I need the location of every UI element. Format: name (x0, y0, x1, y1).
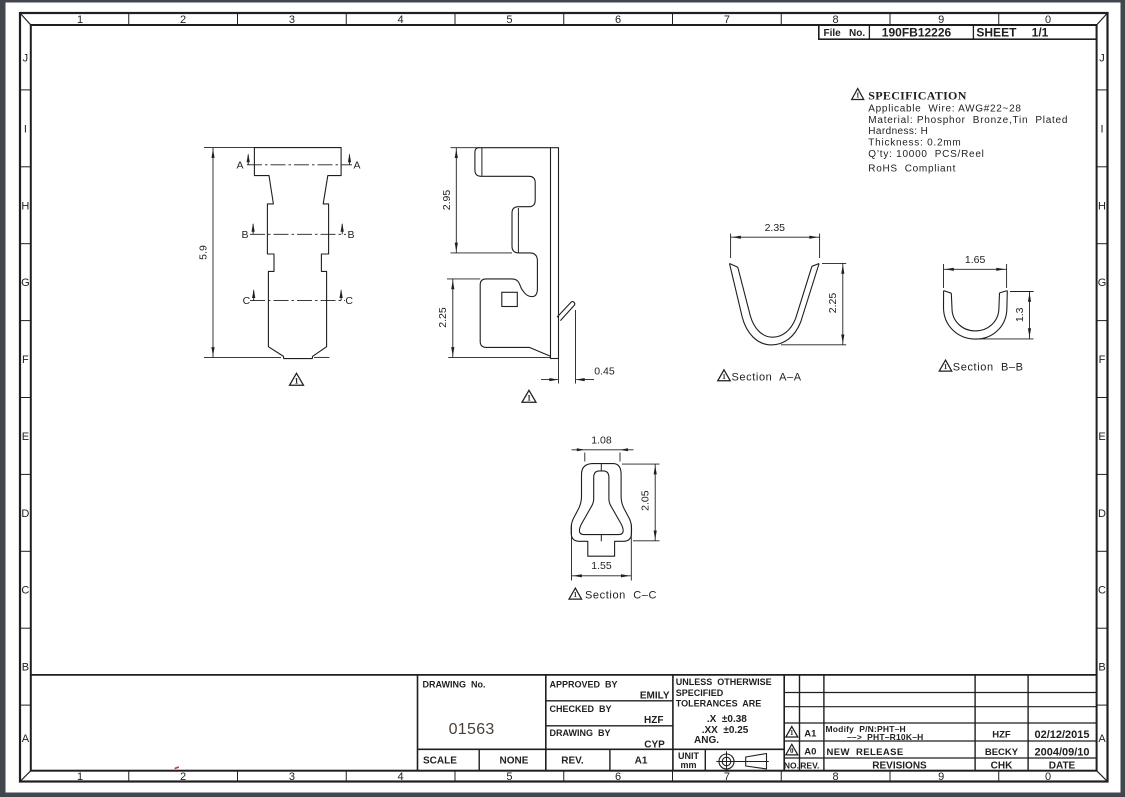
svg-text:7: 7 (724, 14, 730, 26)
svg-text:REV.: REV. (800, 760, 819, 770)
svg-text:G: G (1098, 277, 1107, 289)
svg-text:I: I (1100, 123, 1103, 135)
svg-text:G: G (21, 277, 30, 289)
svg-text:F: F (1099, 354, 1106, 366)
svg-text:CHECKED BY: CHECKED BY (550, 704, 612, 714)
svg-text:Material: Phosphor Bronze,Tin: Material: Phosphor Bronze,Tin Plated (868, 115, 1068, 126)
svg-text:H: H (1098, 200, 1106, 212)
svg-text:.X ±0.38: .X ±0.38 (707, 714, 747, 725)
svg-text:Hardness: H: Hardness: H (868, 126, 928, 137)
svg-text:DRAWING No.: DRAWING No. (423, 679, 486, 689)
svg-text:2.05: 2.05 (639, 490, 651, 511)
svg-text:A: A (22, 733, 30, 745)
svg-text:HZF: HZF (992, 729, 1011, 740)
svg-text:F: F (22, 354, 29, 366)
svg-text:2: 2 (180, 771, 186, 783)
svg-text:ANG.: ANG. (694, 735, 719, 746)
svg-text:NEW RELEASE: NEW RELEASE (827, 747, 904, 758)
svg-text:TOLERANCES ARE: TOLERANCES ARE (676, 699, 762, 709)
svg-text:6: 6 (615, 771, 621, 783)
svg-text:1: 1 (295, 376, 299, 385)
svg-text:CYP: CYP (644, 739, 665, 750)
svg-text:5.9: 5.9 (198, 245, 210, 260)
svg-text:3: 3 (289, 14, 295, 26)
svg-text:1: 1 (527, 393, 531, 402)
svg-text:File No.: File No. (824, 28, 866, 39)
svg-text:02/12/2015: 02/12/2015 (1034, 729, 1089, 741)
svg-text:E: E (1098, 431, 1105, 443)
svg-text:mm: mm (680, 760, 696, 770)
svg-text:8: 8 (833, 771, 839, 783)
svg-text:5: 5 (506, 771, 512, 783)
svg-text:9: 9 (938, 771, 944, 783)
svg-text:1.3: 1.3 (1014, 307, 1026, 322)
svg-text:C: C (1098, 585, 1106, 597)
svg-text:C: C (21, 585, 29, 597)
svg-text:5: 5 (506, 14, 512, 26)
svg-text:C: C (345, 295, 353, 307)
svg-text:SHEET: SHEET (976, 26, 1017, 40)
svg-text:1: 1 (77, 771, 83, 783)
svg-text:REV.: REV. (561, 756, 584, 767)
svg-text:1.55: 1.55 (591, 560, 612, 572)
svg-text:––> PHT–R10K–H: ––> PHT–R10K–H (847, 732, 923, 742)
svg-text:CHK: CHK (991, 760, 1013, 771)
svg-text:01563: 01563 (449, 721, 495, 738)
svg-text:0.45: 0.45 (594, 365, 615, 377)
svg-text:EMILY: EMILY (640, 691, 670, 702)
svg-text:B: B (347, 229, 354, 241)
svg-text:H: H (21, 200, 29, 212)
svg-text:HZF: HZF (644, 715, 663, 726)
svg-text:A: A (236, 159, 243, 171)
svg-text:B: B (241, 229, 248, 241)
svg-text:Section C–C: Section C–C (585, 590, 657, 602)
svg-text:DRAWING BY: DRAWING BY (550, 728, 611, 738)
svg-text:1: 1 (944, 363, 948, 371)
svg-text:E: E (22, 431, 29, 443)
svg-text:3: 3 (289, 771, 295, 783)
svg-text:J: J (1099, 53, 1105, 65)
svg-text:Applicable Wire: AWG#22~28: Applicable Wire: AWG#22~28 (868, 104, 1021, 115)
svg-text:A1: A1 (804, 729, 817, 740)
svg-text:1: 1 (574, 591, 578, 599)
svg-text:Q’ty: 10000 PCS/Reel: Q’ty: 10000 PCS/Reel (868, 149, 984, 160)
svg-text:J: J (23, 53, 29, 65)
svg-text:A1: A1 (635, 756, 648, 767)
svg-text:1: 1 (790, 729, 794, 737)
svg-text:4: 4 (398, 14, 404, 26)
svg-text:A: A (1098, 733, 1106, 745)
svg-text:2.25: 2.25 (437, 307, 449, 328)
svg-text:2.35: 2.35 (765, 222, 786, 234)
svg-text:1.65: 1.65 (965, 254, 986, 266)
svg-text:1: 1 (722, 373, 726, 381)
svg-text:1: 1 (77, 14, 83, 26)
svg-text:SPECIFICATION: SPECIFICATION (868, 88, 966, 102)
svg-text:190FB12226: 190FB12226 (882, 26, 952, 40)
svg-text:Section A–A: Section A–A (732, 371, 802, 383)
svg-text:Thickness: 0.2mm: Thickness: 0.2mm (868, 138, 961, 149)
svg-text:SCALE: SCALE (423, 756, 457, 767)
svg-text:REVISIONS: REVISIONS (872, 760, 927, 771)
svg-text:2.95: 2.95 (441, 190, 453, 211)
svg-text:APPROVED BY: APPROVED BY (550, 679, 618, 689)
svg-text:0: 0 (790, 747, 794, 755)
svg-text:0: 0 (1045, 771, 1051, 783)
svg-text:RoHS Compliant: RoHS Compliant (868, 164, 956, 175)
svg-text:D: D (21, 508, 29, 520)
svg-text:DATE: DATE (1049, 760, 1076, 771)
svg-text:6: 6 (615, 14, 621, 26)
svg-text:2004/09/10: 2004/09/10 (1034, 746, 1089, 758)
svg-text:B: B (1098, 662, 1105, 674)
svg-text:2: 2 (180, 14, 186, 26)
svg-text:NONE: NONE (500, 756, 529, 767)
svg-text:I: I (24, 123, 27, 135)
svg-text:4: 4 (398, 771, 404, 783)
svg-text:1: 1 (856, 92, 860, 100)
svg-text:A0: A0 (804, 746, 816, 757)
svg-text:A: A (353, 159, 360, 171)
svg-text:Section B–B: Section B–B (953, 362, 1024, 374)
svg-text:BECKY: BECKY (985, 747, 1019, 758)
svg-text:SPECIFIED: SPECIFIED (676, 688, 724, 698)
svg-text:UNLESS OTHERWISE: UNLESS OTHERWISE (676, 677, 772, 687)
svg-text:1.08: 1.08 (591, 435, 612, 447)
svg-text:2.25: 2.25 (827, 293, 839, 314)
svg-text:D: D (1098, 508, 1106, 520)
svg-text:NO.: NO. (784, 760, 799, 770)
svg-text:1/1: 1/1 (1032, 26, 1049, 40)
svg-text:B: B (22, 662, 29, 674)
svg-text:C: C (243, 295, 251, 307)
svg-text:7: 7 (724, 771, 730, 783)
